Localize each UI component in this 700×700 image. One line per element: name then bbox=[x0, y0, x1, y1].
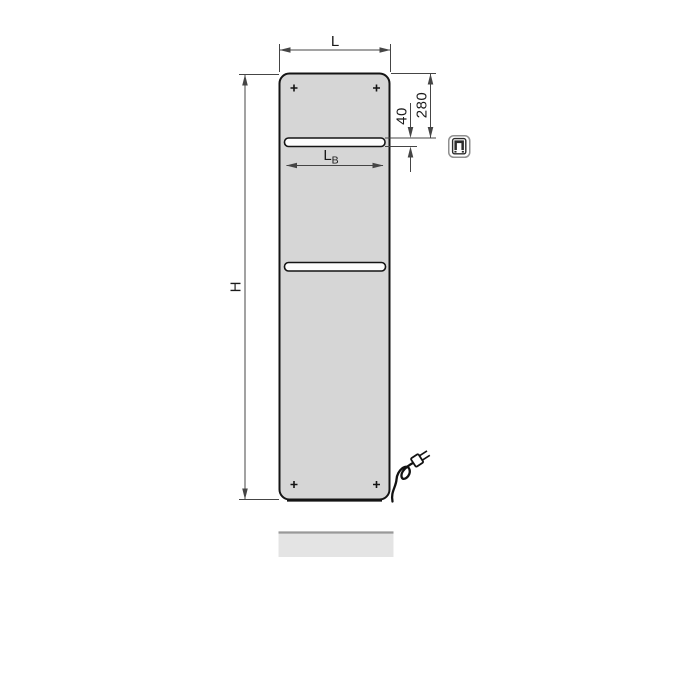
diagram-canvas: L H 280 40 LB bbox=[0, 0, 700, 700]
electric-plug-icon bbox=[449, 136, 470, 158]
plug-pin-bottom bbox=[422, 455, 430, 460]
arrowhead-bottom bbox=[242, 489, 248, 500]
floor-reflection bbox=[279, 532, 394, 557]
dimension-label-overall-width: L bbox=[331, 33, 339, 50]
arrowhead-down bbox=[408, 127, 414, 138]
rail-width-label-subscript: B bbox=[332, 155, 339, 167]
arrowhead-up bbox=[408, 147, 414, 158]
towel-rail-top bbox=[285, 138, 386, 147]
dimension-overall-height bbox=[239, 75, 279, 500]
icon-plug-foot-right bbox=[462, 151, 464, 153]
icon-plug-foot-left bbox=[454, 151, 456, 153]
arrowhead-left bbox=[280, 47, 291, 53]
plug-pin-top bbox=[419, 451, 427, 456]
towel-rail-middle bbox=[285, 263, 386, 272]
icon-plug-pin-left bbox=[454, 143, 457, 150]
icon-plug-pin-right bbox=[461, 143, 464, 150]
plug-body bbox=[411, 454, 424, 467]
dimension-label-overall-height: H bbox=[228, 282, 245, 293]
power-cord bbox=[392, 463, 413, 502]
arrowhead-bottom bbox=[428, 127, 434, 138]
dimension-label-rail-thickness: 40 bbox=[394, 107, 411, 125]
dimension-label-top-to-rail: 280 bbox=[414, 92, 431, 119]
power-cord-group bbox=[392, 449, 431, 502]
icon-plug-bar bbox=[454, 140, 464, 143]
radiator-dimension-figure: L H 280 40 LB bbox=[0, 0, 700, 700]
rail-width-label-main: L bbox=[323, 147, 331, 164]
reflection-body bbox=[279, 532, 394, 557]
arrowhead-right bbox=[380, 47, 391, 53]
arrowhead-top bbox=[242, 75, 248, 86]
power-plug bbox=[411, 449, 432, 467]
arrowhead-top bbox=[428, 74, 434, 85]
